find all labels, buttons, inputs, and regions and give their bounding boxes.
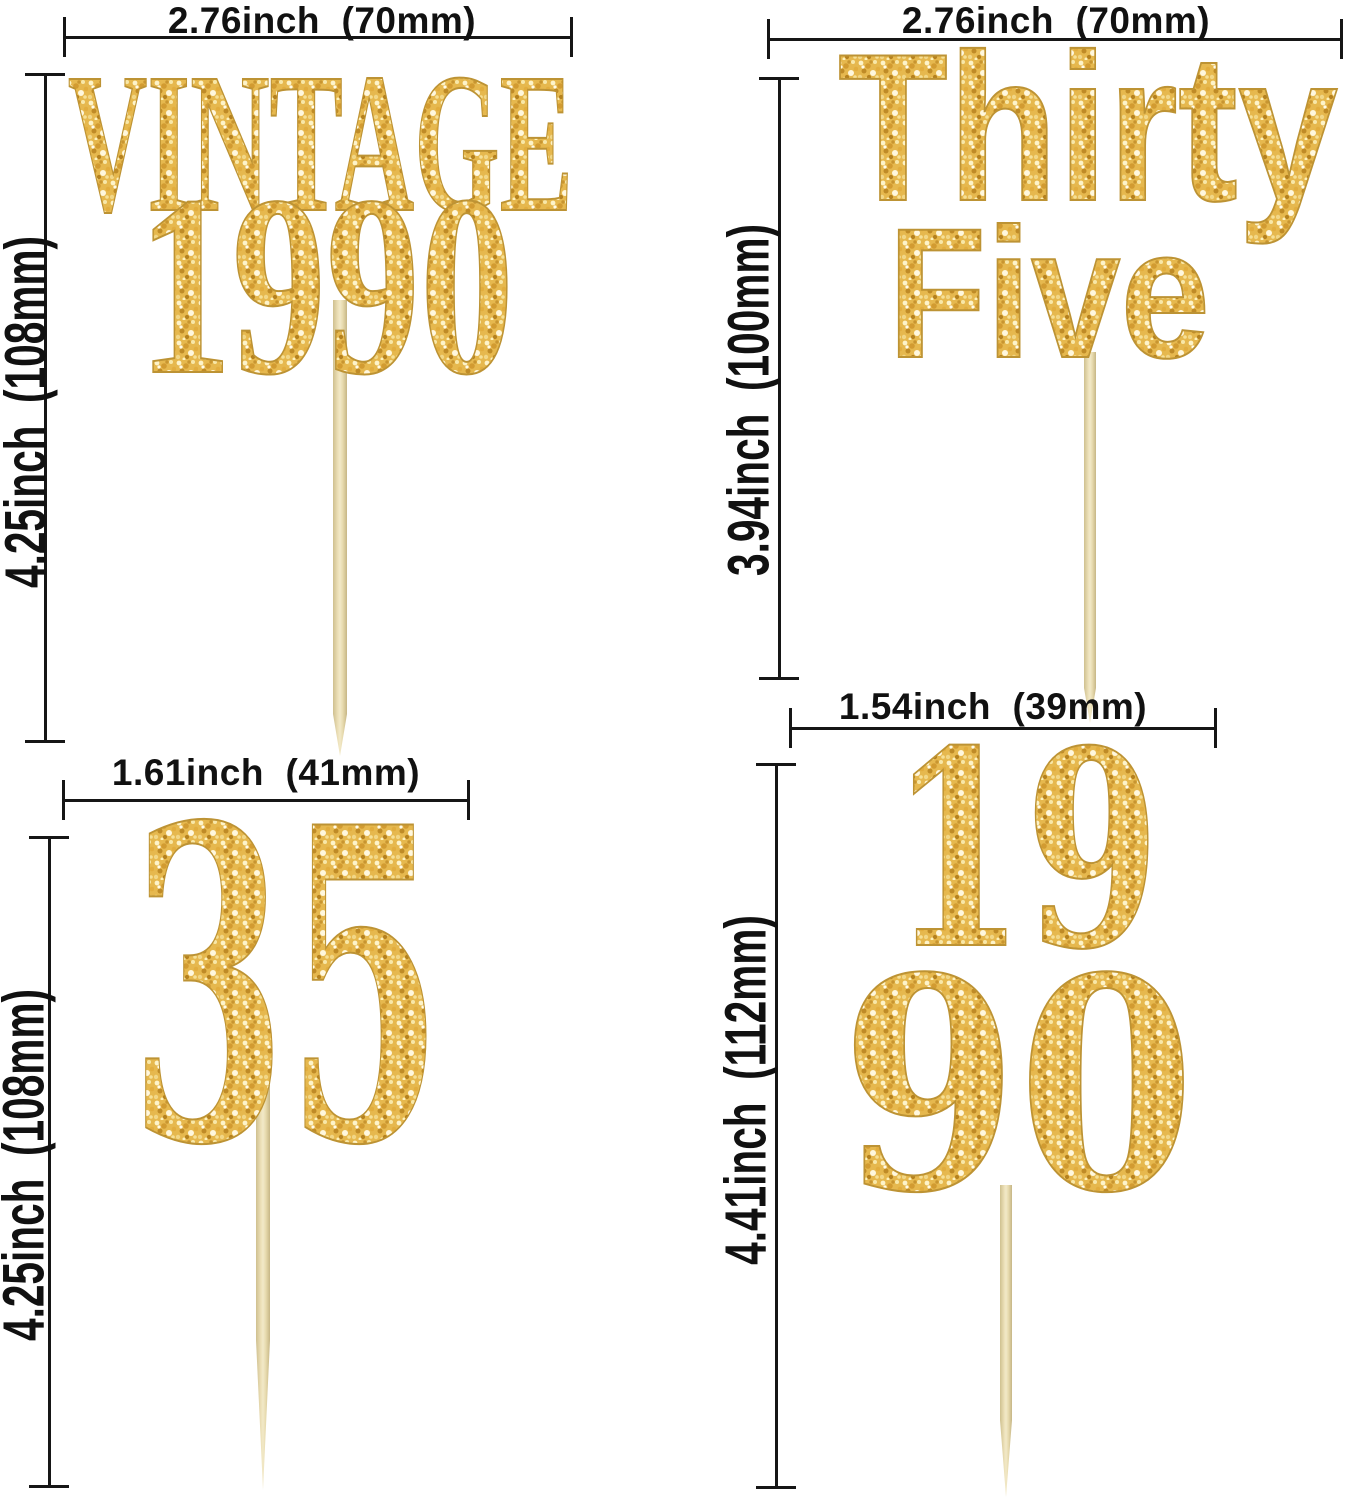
height-label-text: 4.25inch (108mm) — [0, 989, 58, 1341]
height-label-nineteen-ninety: 4.41inch (112mm) — [713, 840, 780, 1340]
topper-text-90: 90 — [841, 914, 1195, 1257]
height-label-text: 3.94inch (100mm) — [716, 224, 783, 576]
width-label-nineteen-ninety: 1.54inch (39mm) — [839, 686, 1147, 728]
width-label-thirty-five-words: 2.76inch (70mm) — [902, 0, 1210, 42]
height-label-vintage-1990: 4.25inch (108mm) — [0, 161, 60, 664]
width-label-vintage-1990: 2.76inch (70mm) — [168, 0, 476, 42]
width-label-thirty-five-numeral: 1.61inch (41mm) — [112, 752, 420, 794]
width-line-thirty-five-numeral — [62, 799, 470, 802]
topper-text-five: Five — [888, 191, 1210, 397]
topper-text-1990: 1990 — [138, 142, 514, 428]
toppers-layer: VINTAGE 1990 Thirty Five 35 19 90 — [0, 0, 1347, 1500]
height-label-text: 4.41inch (112mm) — [713, 915, 780, 1265]
height-label-thirty-five-numeral: 4.25inch (108mm) — [0, 914, 58, 1417]
height-label-text: 4.25inch (108mm) — [0, 236, 60, 588]
product-dimension-image: VINTAGE 1990 Thirty Five 35 19 90 2.76in… — [0, 0, 1347, 1500]
height-label-thirty-five-words: 3.94inch (100mm) — [716, 149, 783, 652]
topper-text-35: 35 — [130, 735, 443, 1240]
toothpick-thirty-five-words — [1084, 352, 1096, 723]
